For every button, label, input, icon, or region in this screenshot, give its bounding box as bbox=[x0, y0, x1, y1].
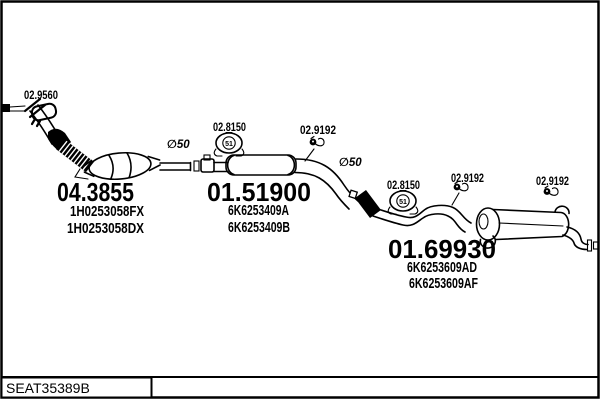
exhaust-parts-diagram: 51 51 02.9560 ∅50 02.8150 02.9192 ∅50 02… bbox=[0, 0, 600, 400]
rear-hanger2-label: 02.9192 bbox=[536, 176, 569, 188]
rear-oem-1: 6K6253609AD bbox=[407, 260, 477, 276]
hanger-pin bbox=[349, 190, 357, 198]
catalyst-oem-2: 1H0253058DX bbox=[67, 221, 144, 237]
mid-hanger-label: 02.9192 bbox=[300, 125, 336, 137]
mid-oem-2: 6K6253409B bbox=[228, 220, 290, 236]
front-diameter-label: ∅50 bbox=[167, 139, 190, 151]
catalyst-part-code: 04.3855 bbox=[57, 177, 134, 207]
mid-diameter-label: ∅50 bbox=[339, 157, 362, 169]
mount-size-label: 51 bbox=[399, 199, 407, 206]
mid-oem-1: 6K6253409A bbox=[228, 203, 289, 219]
catalyst-oem-1: 1H0253058FX bbox=[70, 204, 144, 220]
mount-size-label: 51 bbox=[225, 141, 233, 148]
mid-mount-label: 02.8150 bbox=[213, 122, 246, 134]
diagram-canvas: 51 51 02.9560 ∅50 02.8150 02.9192 ∅50 02… bbox=[0, 0, 600, 400]
catalog-id-text: SEAT35389B bbox=[6, 380, 90, 396]
manifold-bolt bbox=[2, 104, 10, 112]
rear-hanger1-label: 02.9192 bbox=[451, 173, 484, 185]
rear-oem-2: 6K6253609AF bbox=[409, 276, 478, 292]
rear-mount-label: 02.8150 bbox=[387, 180, 420, 192]
front-clamp-label: 02.9560 bbox=[24, 90, 58, 102]
